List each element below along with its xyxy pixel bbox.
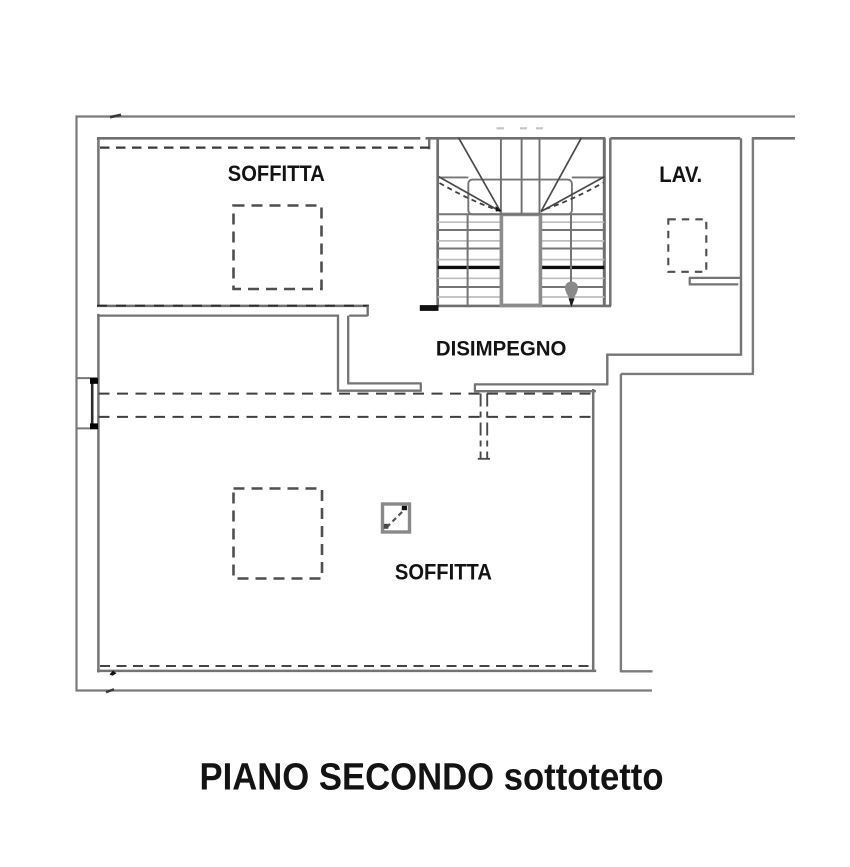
svg-text:SOFFITTA: SOFFITTA <box>395 559 492 584</box>
svg-text:DISIMPEGNO: DISIMPEGNO <box>436 337 567 361</box>
svg-text:SOFFITTA: SOFFITTA <box>228 161 325 186</box>
svg-text:LAV.: LAV. <box>659 162 702 187</box>
svg-text:PIANO SECONDO sottotetto: PIANO SECONDO sottotetto <box>200 757 664 799</box>
